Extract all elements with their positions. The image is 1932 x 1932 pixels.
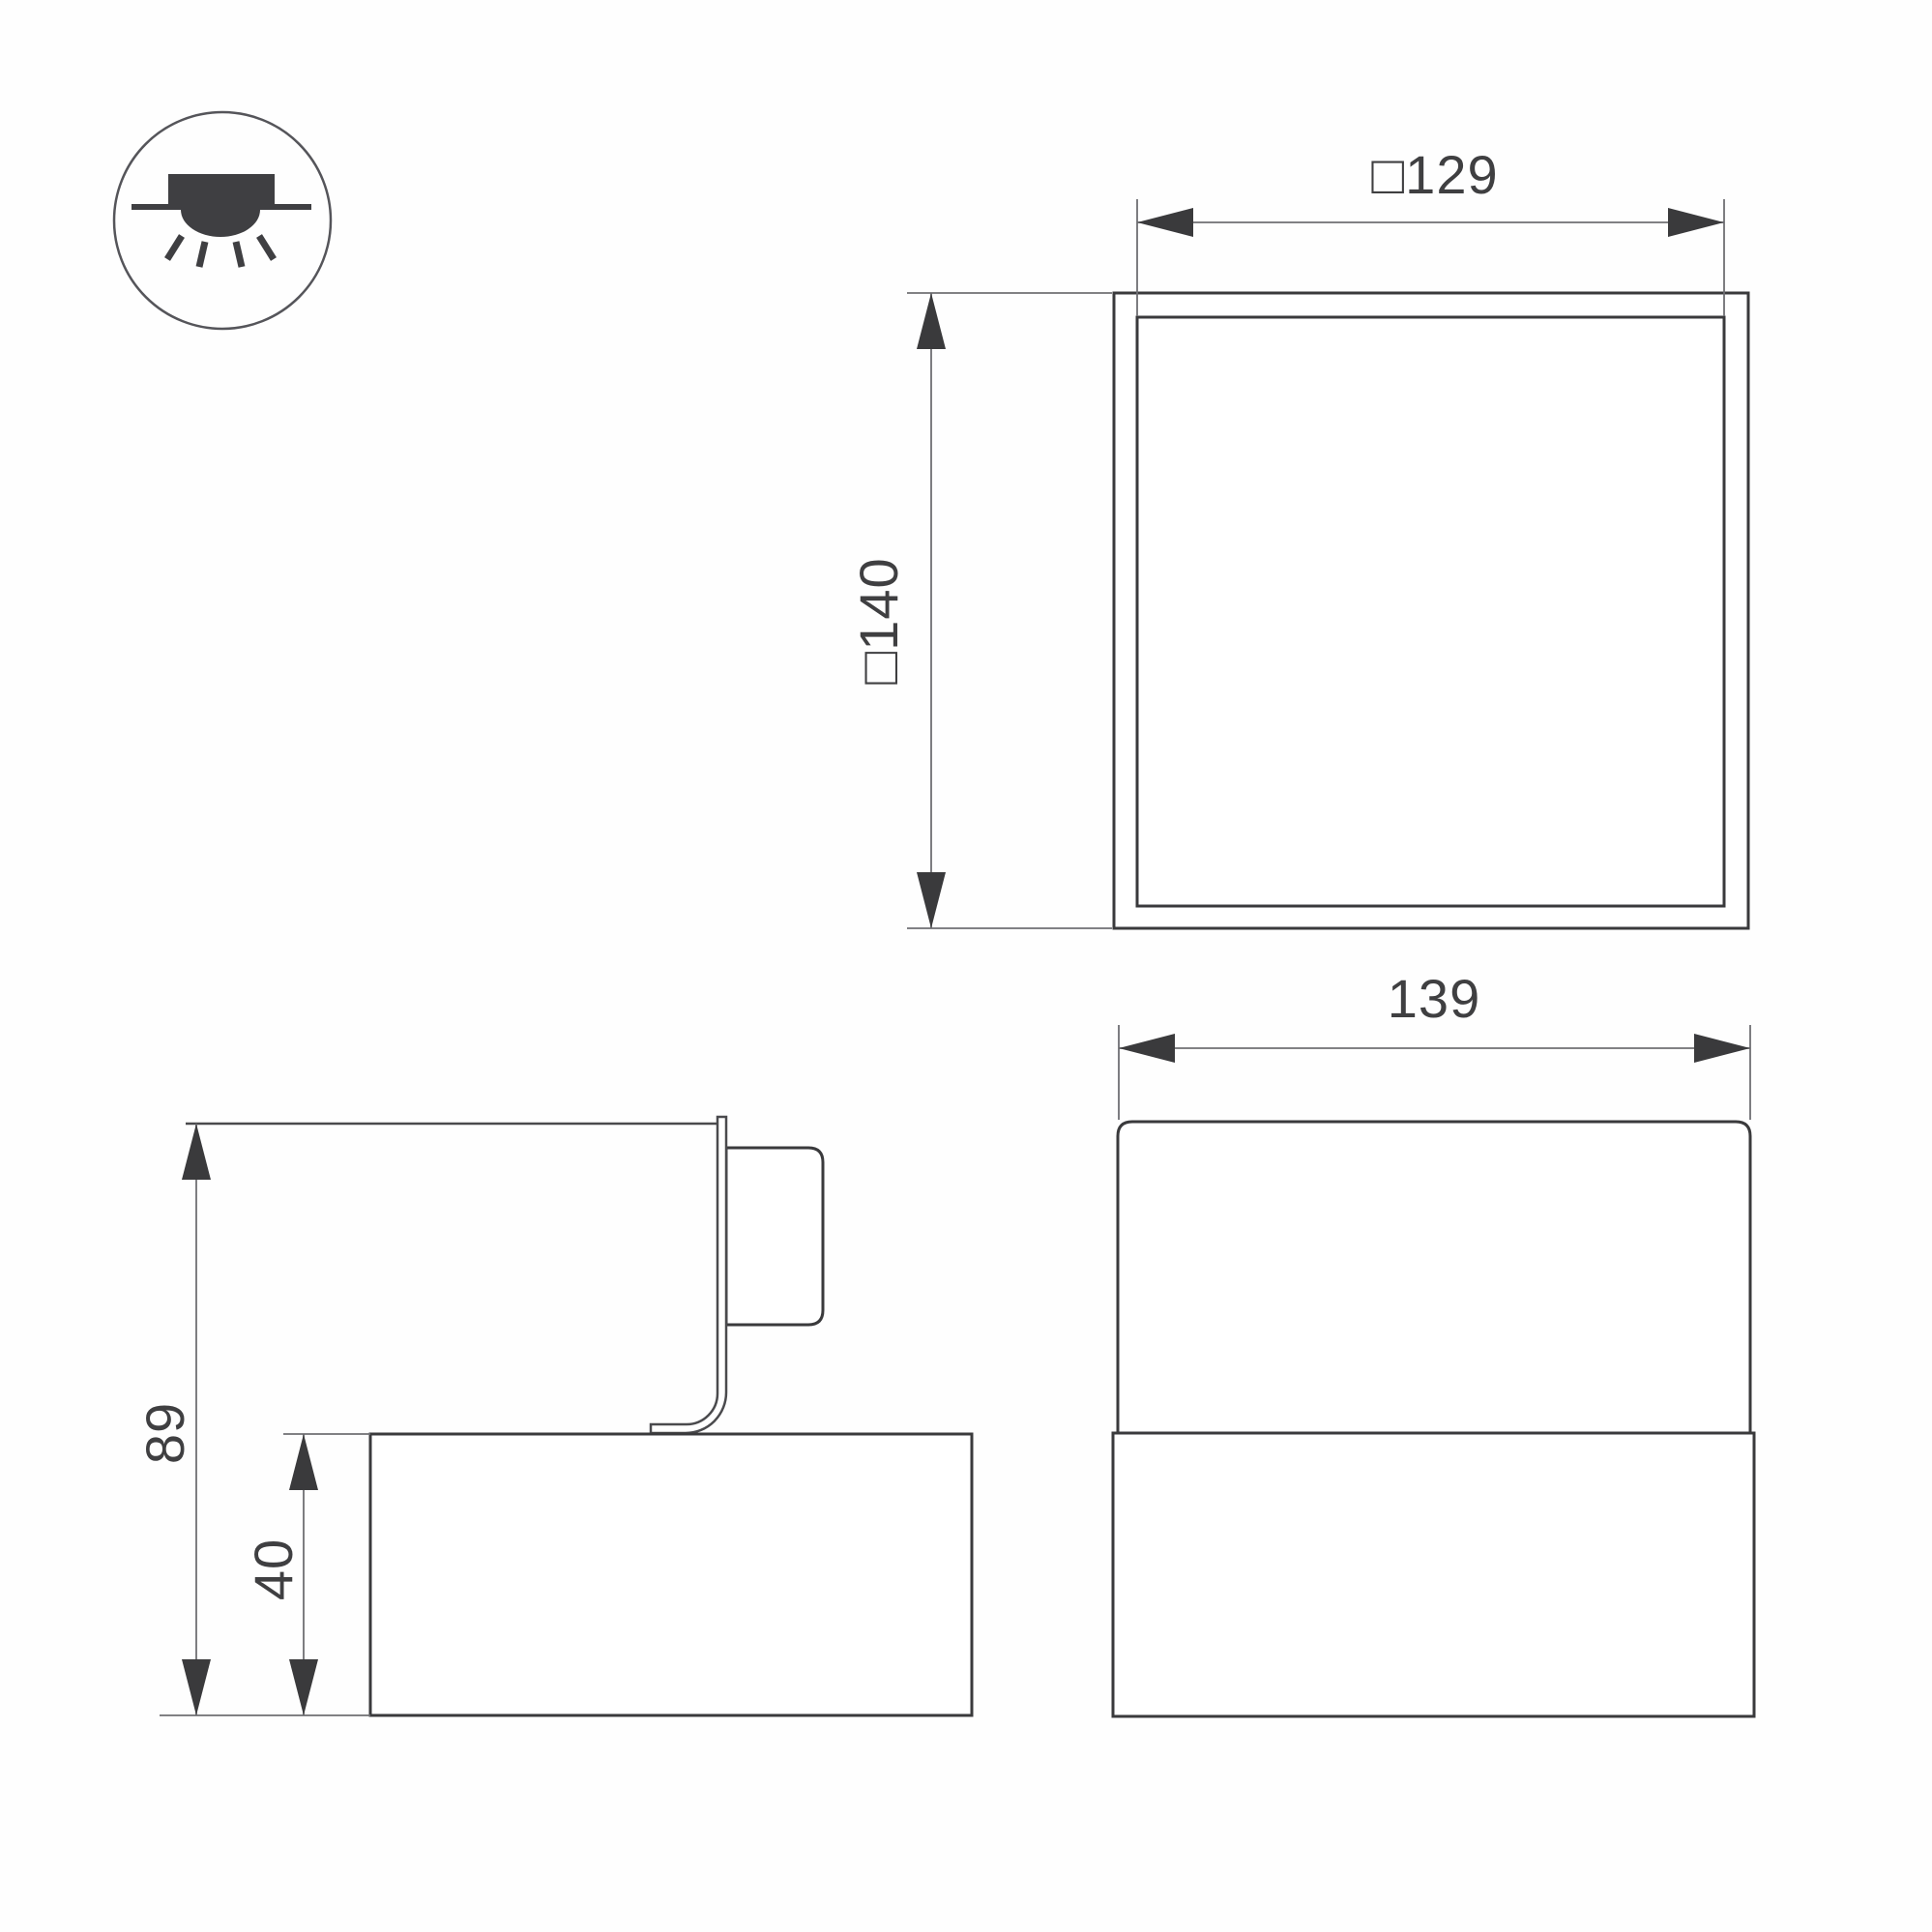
dim-label-total-height: 89 [134,1402,195,1464]
dimension-front-width: 139 [1119,968,1750,1120]
arrowhead-down [182,1659,211,1715]
dimension-outer-height: □140 [848,293,1112,928]
fixture-housing-glyph [168,174,275,204]
front-view: 139 [1113,968,1754,1716]
top-view: □129 □140 [848,144,1748,928]
dim-label-inner-width: □129 [1371,144,1498,205]
arrowhead-down [289,1659,318,1715]
side-view: 89 40 [134,1117,972,1715]
front-view-base [1113,1433,1754,1716]
driver-box [726,1148,823,1325]
dimension-base-height: 40 [243,1434,370,1715]
arrowhead-right [1668,208,1724,237]
arrowhead-up [289,1434,318,1490]
lamp-dome-glyph [181,210,260,237]
arrowhead-up [182,1124,211,1180]
top-view-inner-square [1137,317,1724,906]
recessed-downlight-icon [132,174,311,267]
dimension-inner-width: □129 [1137,144,1724,316]
dimension-total-height: 89 [134,1124,370,1715]
arrowhead-right [1694,1034,1750,1063]
arrowhead-down [917,872,946,928]
arrowhead-up [917,293,946,349]
light-rays-glyph [167,236,274,267]
dim-label-outer-height: □140 [848,557,909,684]
front-view-shade [1118,1122,1750,1433]
dim-label-front-width: 139 [1388,968,1480,1029]
mounting-bracket [651,1117,726,1433]
dim-label-base-height: 40 [243,1538,304,1600]
mounting-type-badge [114,112,331,329]
arrowhead-left [1137,208,1193,237]
dimension-drawing: □129 □140 89 [0,0,1932,1932]
arrowhead-left [1119,1034,1175,1063]
side-view-lamp-body [370,1434,972,1715]
dimension-drawing-page: □129 □140 89 [0,0,1932,1932]
